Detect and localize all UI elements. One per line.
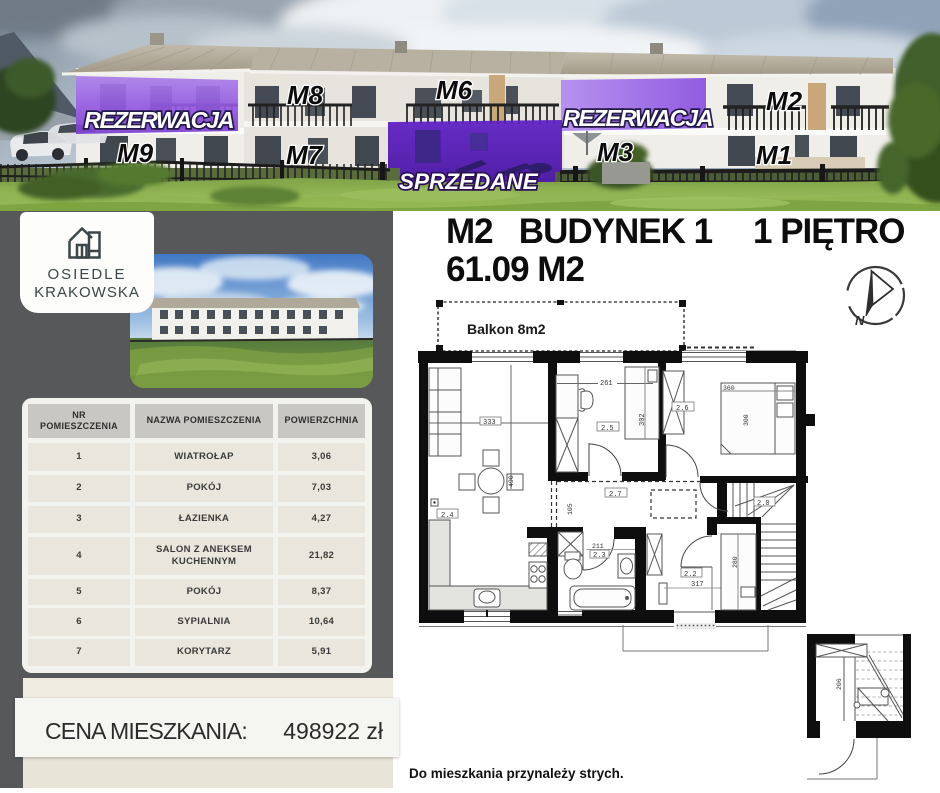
svg-text:490: 490 (508, 475, 515, 487)
svg-text:302: 302 (639, 413, 647, 426)
svg-text:M9: M9 (117, 138, 154, 168)
svg-text:M1: M1 (756, 140, 792, 170)
svg-text:206: 206 (836, 678, 843, 690)
svg-text:M2: M2 (766, 86, 803, 116)
svg-text:2.4: 2.4 (441, 512, 454, 520)
svg-text:280: 280 (732, 556, 739, 568)
svg-text:M6: M6 (436, 75, 473, 105)
svg-text:2.6: 2.6 (676, 405, 689, 413)
svg-text:333: 333 (483, 419, 496, 427)
svg-text:REZERWACJA: REZERWACJA (84, 107, 234, 133)
svg-text:211: 211 (592, 543, 604, 550)
svg-text:SPRZEDANE: SPRZEDANE (399, 169, 539, 194)
svg-text:M3: M3 (597, 137, 634, 167)
svg-text:2.0: 2.0 (757, 500, 770, 508)
svg-text:2.7: 2.7 (609, 491, 622, 499)
svg-text:360: 360 (723, 385, 735, 392)
svg-text:261: 261 (600, 380, 613, 388)
svg-text:105: 105 (567, 503, 574, 515)
svg-text:2.2: 2.2 (684, 571, 697, 579)
svg-text:Balkon 8m2: Balkon 8m2 (467, 321, 546, 337)
svg-text:317: 317 (691, 581, 704, 589)
svg-text:REZERWACJA: REZERWACJA (563, 105, 713, 131)
svg-text:2.5: 2.5 (601, 425, 614, 433)
svg-text:300: 300 (743, 414, 750, 426)
svg-text:M7: M7 (286, 140, 324, 170)
svg-text:2.3: 2.3 (593, 552, 606, 560)
svg-text:M8: M8 (287, 80, 324, 110)
